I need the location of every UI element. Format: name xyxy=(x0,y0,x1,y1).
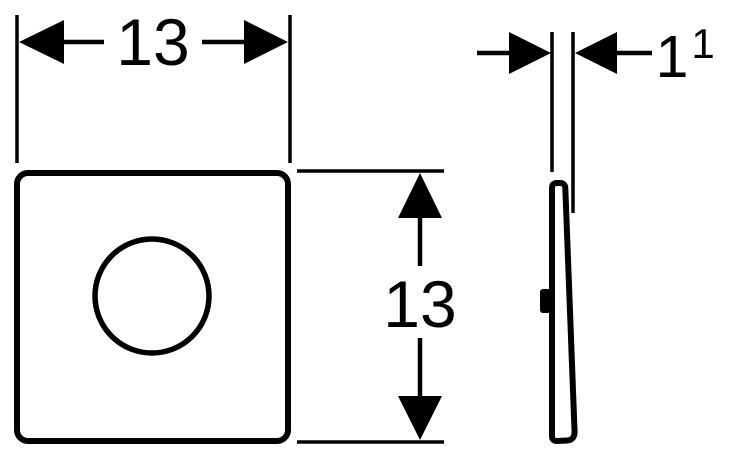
thickness-dimension-label: 1 xyxy=(656,24,689,90)
width-dimension: 13 xyxy=(17,5,290,163)
width-dimension-label: 13 xyxy=(116,5,189,79)
thickness-footnote-superscript: 1 xyxy=(691,20,714,67)
width-arrowhead-left xyxy=(19,20,64,64)
height-dimension: 13 xyxy=(297,171,457,442)
height-dimension-label: 13 xyxy=(383,267,456,341)
thickness-arrowhead-left xyxy=(509,32,551,74)
drawing-canvas: 13 13 1 1 xyxy=(0,0,731,460)
plate-front-outline xyxy=(17,173,288,441)
width-arrowhead-right xyxy=(244,20,288,64)
height-arrowhead-top xyxy=(398,173,442,218)
thickness-dimension: 1 1 xyxy=(477,20,715,213)
plate-side-profile xyxy=(552,183,575,441)
height-arrowhead-bottom xyxy=(398,396,442,440)
thickness-arrowhead-right xyxy=(575,32,617,74)
side-view xyxy=(540,183,575,441)
technical-drawing: 13 13 1 1 xyxy=(0,0,731,460)
front-view xyxy=(17,173,288,441)
